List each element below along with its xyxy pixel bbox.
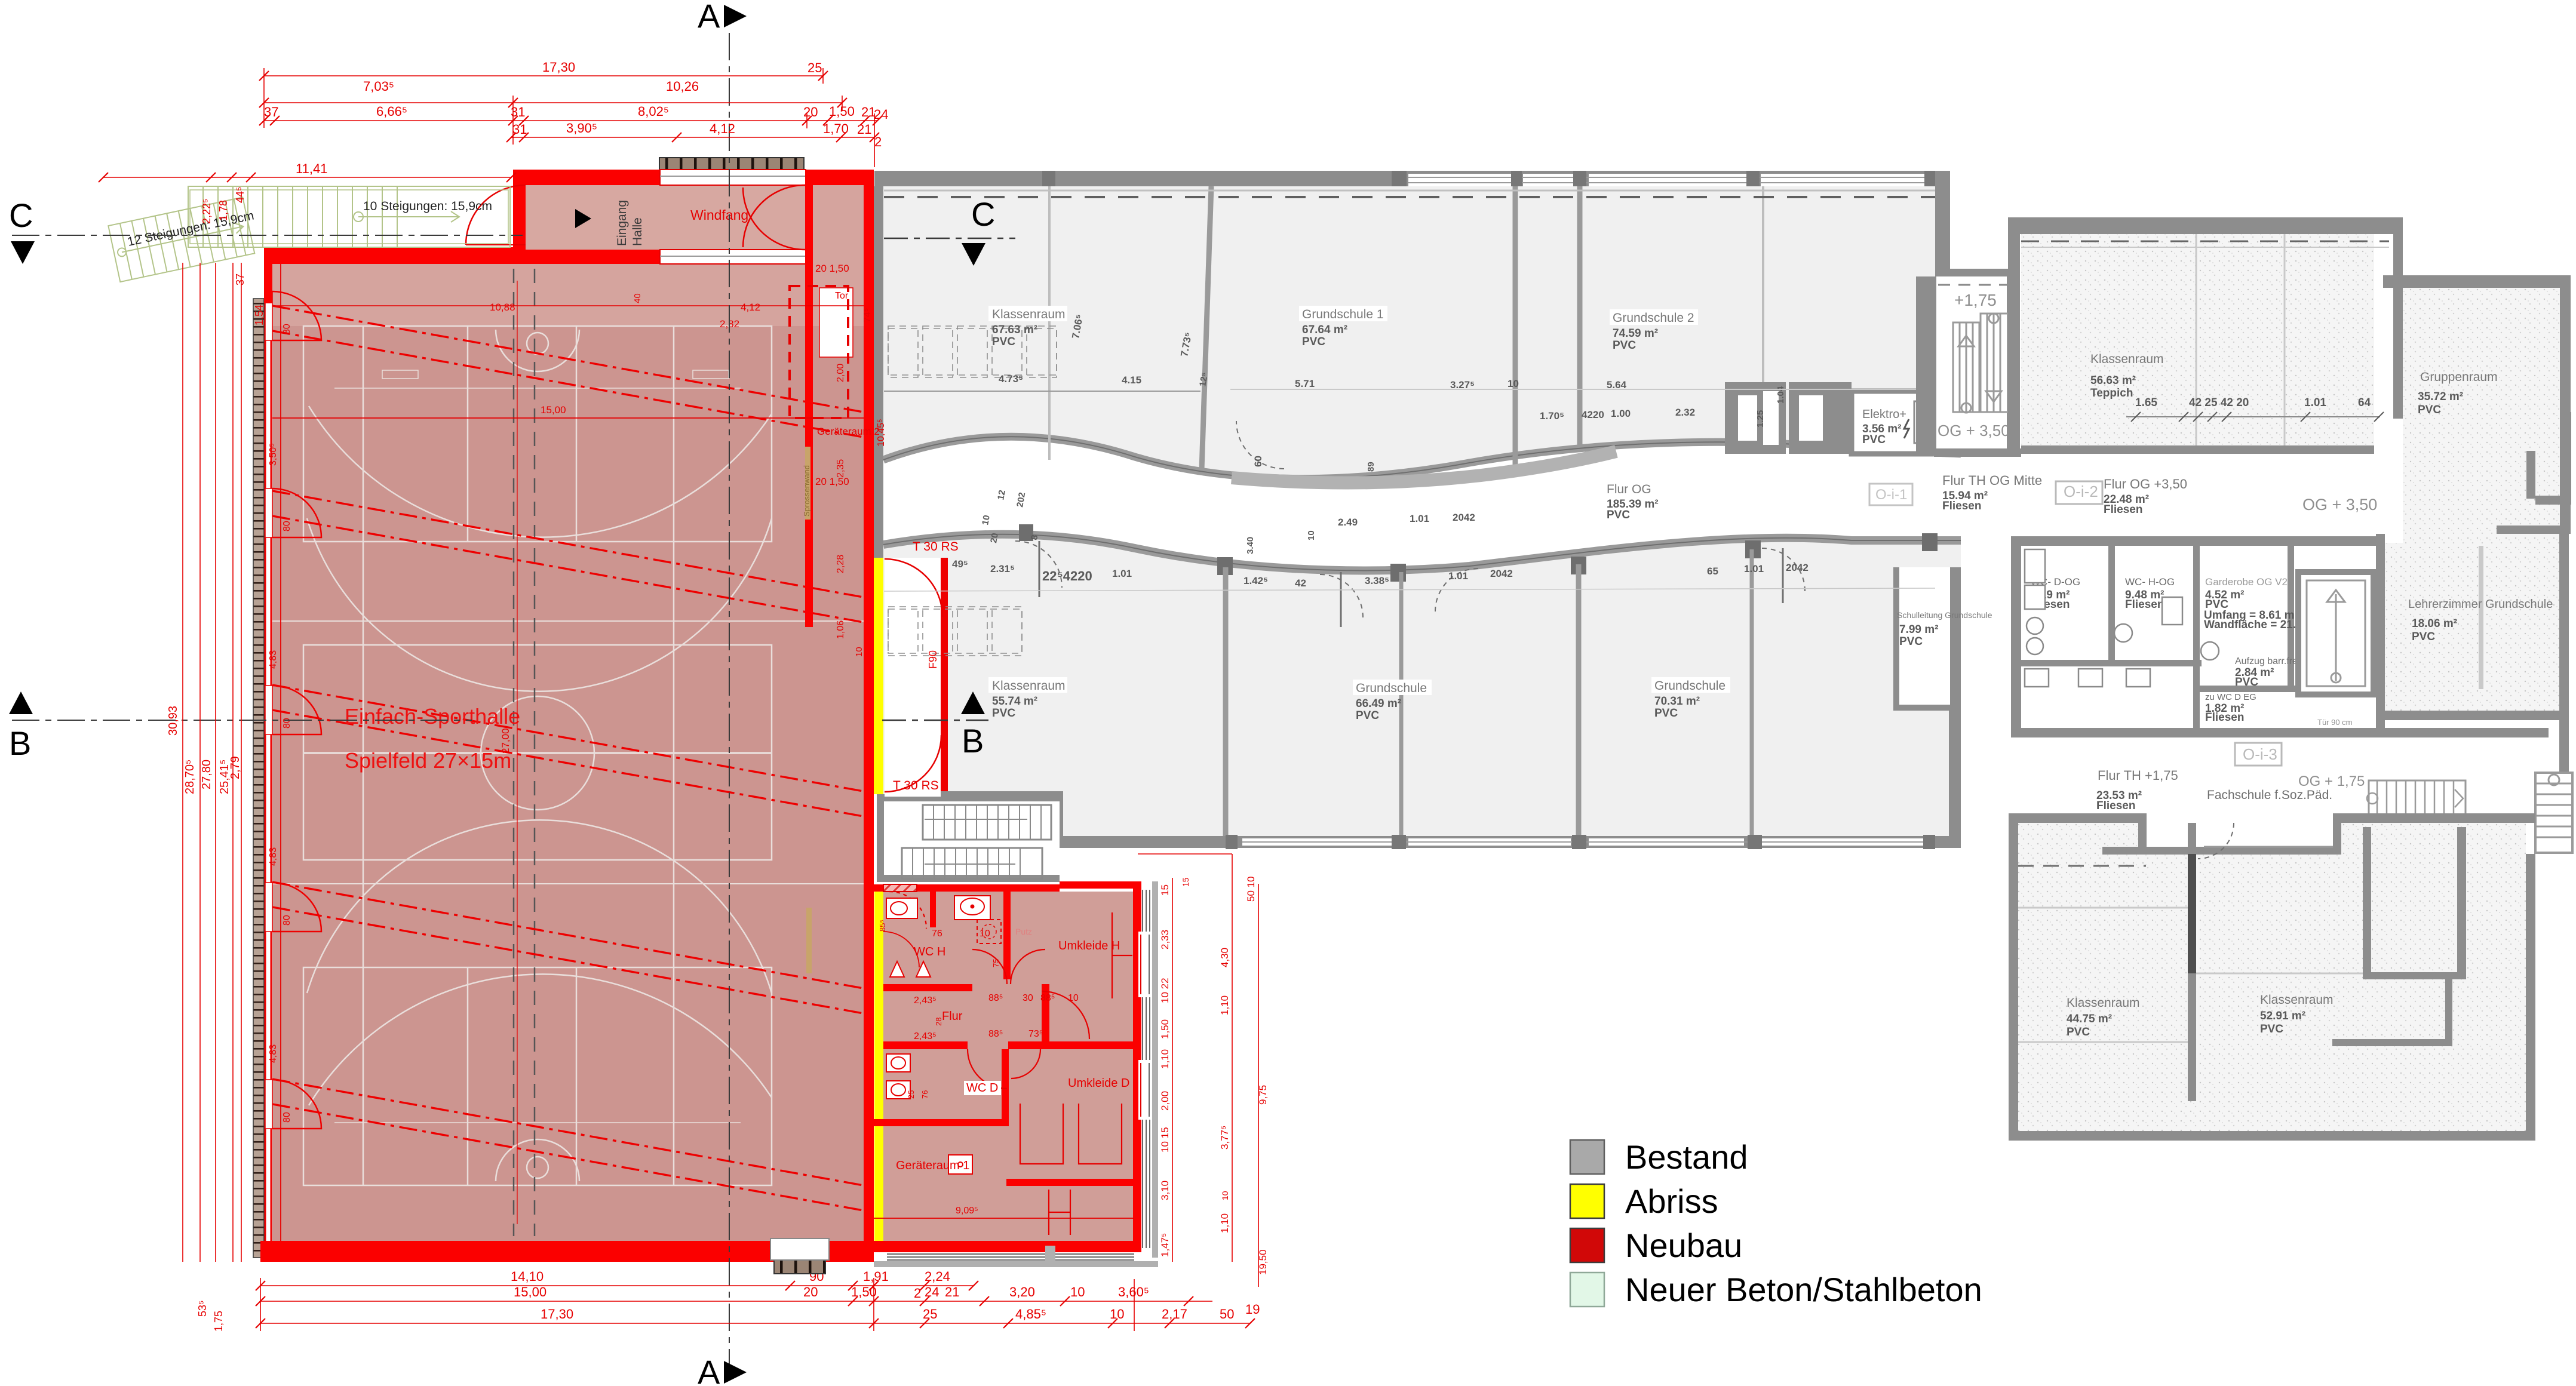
svg-text:80: 80 bbox=[282, 915, 292, 926]
svg-text:B: B bbox=[962, 722, 984, 760]
svg-text:1.25: 1.25 bbox=[1755, 410, 1766, 428]
svg-text:C: C bbox=[9, 196, 33, 234]
svg-text:1.04: 1.04 bbox=[1776, 386, 1786, 404]
svg-text:64: 64 bbox=[2358, 397, 2371, 409]
svg-text:9,75: 9,75 bbox=[1257, 1085, 1269, 1105]
svg-text:4.73⁵: 4.73⁵ bbox=[999, 373, 1023, 385]
svg-text:PVC: PVC bbox=[1356, 709, 1379, 722]
svg-text:19: 19 bbox=[1245, 1302, 1260, 1317]
svg-text:17,30: 17,30 bbox=[541, 1307, 573, 1322]
svg-text:PVC: PVC bbox=[2412, 631, 2435, 643]
svg-text:Elektro+: Elektro+ bbox=[1862, 408, 1906, 421]
svg-text:31: 31 bbox=[511, 105, 525, 119]
svg-text:C: C bbox=[971, 195, 995, 233]
svg-text:Aufzug barr.frei: Aufzug barr.frei bbox=[2235, 656, 2300, 666]
svg-text:10: 10 bbox=[980, 929, 990, 939]
svg-text:10,45⁵: 10,45⁵ bbox=[876, 419, 886, 447]
svg-text:PVC: PVC bbox=[1607, 509, 1630, 521]
svg-text:10: 10 bbox=[1507, 378, 1519, 389]
svg-text:30,93: 30,93 bbox=[167, 706, 180, 736]
svg-text:Grundschule: Grundschule bbox=[1356, 681, 1427, 695]
svg-text:52.91 m²: 52.91 m² bbox=[2260, 1010, 2305, 1022]
svg-text:Flur OG: Flur OG bbox=[1607, 483, 1651, 496]
svg-text:10 15: 10 15 bbox=[1159, 1127, 1171, 1153]
svg-text:PVC: PVC bbox=[1862, 434, 1886, 446]
svg-text:5.71: 5.71 bbox=[1295, 378, 1315, 389]
svg-text:10,88: 10,88 bbox=[490, 302, 515, 313]
svg-text:3,60⁵: 3,60⁵ bbox=[1118, 1284, 1149, 1299]
svg-text:19,50: 19,50 bbox=[1257, 1249, 1269, 1275]
svg-text:Neuer Beton/Stahlbeton: Neuer Beton/Stahlbeton bbox=[1625, 1271, 1982, 1308]
svg-text:20: 20 bbox=[803, 105, 818, 119]
svg-text:Umkleide D: Umkleide D bbox=[1068, 1077, 1129, 1090]
svg-text:1,50: 1,50 bbox=[1159, 1019, 1171, 1039]
svg-text:Tür 90 cm: Tür 90 cm bbox=[2317, 718, 2353, 727]
svg-text:1,10: 1,10 bbox=[1159, 1049, 1171, 1069]
svg-text:42: 42 bbox=[1295, 577, 1306, 589]
svg-text:Eingang: Eingang bbox=[615, 200, 629, 246]
svg-text:8,02⁵: 8,02⁵ bbox=[638, 104, 669, 119]
svg-text:88⁵: 88⁵ bbox=[988, 993, 1003, 1003]
svg-text:50 10: 50 10 bbox=[1245, 876, 1257, 902]
svg-text:89: 89 bbox=[1366, 462, 1376, 472]
svg-text:20: 20 bbox=[803, 1284, 818, 1299]
svg-text:28,70⁵: 28,70⁵ bbox=[183, 760, 196, 794]
svg-text:F90: F90 bbox=[927, 650, 939, 669]
svg-text:10 22: 10 22 bbox=[1159, 978, 1171, 1003]
svg-text:2042: 2042 bbox=[1490, 568, 1513, 579]
svg-text:1.01: 1.01 bbox=[1744, 563, 1764, 574]
svg-text:PVC: PVC bbox=[992, 336, 1015, 348]
svg-text:Fliesen: Fliesen bbox=[2104, 503, 2142, 516]
svg-text:Tor: Tor bbox=[835, 291, 849, 301]
svg-text:17,30: 17,30 bbox=[542, 60, 575, 75]
svg-text:1,10: 1,10 bbox=[1219, 995, 1230, 1015]
svg-text:15: 15 bbox=[1159, 884, 1171, 896]
svg-text:73⁵: 73⁵ bbox=[1028, 1029, 1043, 1039]
svg-text:WC- H-OG: WC- H-OG bbox=[2125, 576, 2175, 588]
svg-text:3,50⁵: 3,50⁵ bbox=[268, 443, 278, 466]
svg-text:Geräteraum 1: Geräteraum 1 bbox=[896, 1159, 969, 1172]
svg-text:4,85⁵: 4,85⁵ bbox=[1015, 1307, 1046, 1322]
svg-text:A: A bbox=[698, 0, 720, 35]
svg-text:1,06: 1,06 bbox=[836, 620, 846, 639]
svg-text:28: 28 bbox=[934, 1018, 943, 1026]
svg-text:Flur: Flur bbox=[942, 1010, 963, 1023]
svg-text:Klassenraum: Klassenraum bbox=[992, 308, 1066, 321]
svg-text:1.01: 1.01 bbox=[1410, 513, 1429, 524]
svg-text:10 Steigungen: 15,9cm: 10 Steigungen: 15,9cm bbox=[363, 199, 492, 213]
svg-text:74⁵: 74⁵ bbox=[862, 308, 873, 322]
svg-text:Garderobe OG V2: Garderobe OG V2 bbox=[2205, 576, 2288, 588]
svg-text:Klassenraum: Klassenraum bbox=[2067, 996, 2140, 1010]
svg-text:2,43⁵: 2,43⁵ bbox=[914, 995, 937, 1006]
svg-text:27,80: 27,80 bbox=[200, 760, 213, 789]
svg-text:+1,75: +1,75 bbox=[1954, 291, 1997, 309]
svg-text:22⁵4220: 22⁵4220 bbox=[1042, 568, 1092, 583]
svg-text:37: 37 bbox=[234, 273, 246, 285]
svg-text:4,30: 4,30 bbox=[1219, 948, 1230, 967]
svg-text:2,24: 2,24 bbox=[925, 1269, 950, 1284]
svg-text:1.01: 1.01 bbox=[1112, 568, 1132, 579]
svg-text:31: 31 bbox=[512, 122, 527, 137]
svg-text:PVC: PVC bbox=[2067, 1026, 2090, 1038]
svg-text:4,83: 4,83 bbox=[268, 847, 278, 866]
svg-text:Windfang: Windfang bbox=[690, 207, 748, 223]
svg-text:OG + 3,50: OG + 3,50 bbox=[1938, 422, 2010, 440]
svg-text:2,00: 2,00 bbox=[836, 364, 846, 382]
svg-text:11,41: 11,41 bbox=[296, 161, 327, 176]
svg-text:65: 65 bbox=[1707, 566, 1718, 577]
svg-text:56.63 m²: 56.63 m² bbox=[2090, 374, 2136, 387]
svg-text:35.72 m²: 35.72 m² bbox=[2418, 391, 2463, 403]
svg-text:Fliesen: Fliesen bbox=[2205, 711, 2244, 724]
svg-text:20 1,50: 20 1,50 bbox=[815, 263, 849, 274]
svg-text:Putz: Putz bbox=[1015, 927, 1032, 936]
svg-text:80: 80 bbox=[282, 718, 292, 729]
svg-text:Klassenraum: Klassenraum bbox=[2260, 993, 2334, 1007]
svg-text:80: 80 bbox=[282, 521, 292, 531]
svg-text:40: 40 bbox=[633, 293, 643, 303]
svg-text:PVC: PVC bbox=[992, 707, 1015, 720]
svg-text:20: 20 bbox=[988, 532, 1000, 543]
svg-text:Fliesen: Fliesen bbox=[2125, 598, 2164, 611]
svg-text:55.74 m²: 55.74 m² bbox=[992, 695, 1037, 708]
svg-text:14,10: 14,10 bbox=[511, 1269, 544, 1284]
svg-text:2,28: 2,28 bbox=[836, 555, 846, 573]
svg-text:3,10: 3,10 bbox=[1159, 1181, 1171, 1200]
svg-text:10: 10 bbox=[1220, 1191, 1230, 1200]
svg-text:1,75: 1,75 bbox=[213, 1311, 225, 1332]
svg-text:9,09⁵: 9,09⁵ bbox=[956, 1206, 978, 1216]
svg-text:2,35: 2,35 bbox=[836, 459, 846, 478]
svg-text:1,50: 1,50 bbox=[851, 1284, 877, 1299]
svg-text:1.01: 1.01 bbox=[2304, 397, 2326, 409]
svg-text:21: 21 bbox=[945, 1284, 959, 1299]
svg-text:3,77⁵: 3,77⁵ bbox=[1219, 1126, 1230, 1150]
svg-text:1,47⁵: 1,47⁵ bbox=[1159, 1233, 1171, 1257]
svg-text:50: 50 bbox=[1220, 1307, 1234, 1322]
svg-text:PVC: PVC bbox=[1302, 336, 1325, 348]
svg-text:2.31⁵: 2.31⁵ bbox=[990, 563, 1015, 574]
svg-text:30: 30 bbox=[1023, 993, 1033, 1003]
svg-text:4220: 4220 bbox=[1582, 409, 1604, 420]
svg-text:2042: 2042 bbox=[1453, 512, 1475, 523]
svg-text:10: 10 bbox=[1110, 1307, 1124, 1322]
svg-text:2.32: 2.32 bbox=[1675, 407, 1695, 418]
svg-text:24: 24 bbox=[874, 107, 888, 122]
svg-text:PVC: PVC bbox=[2235, 676, 2258, 689]
svg-text:1.01: 1.01 bbox=[1448, 570, 1468, 582]
svg-text:Grundschule 2: Grundschule 2 bbox=[1613, 311, 1694, 325]
svg-text:42 25 42 20: 42 25 42 20 bbox=[2189, 397, 2249, 409]
svg-text:zu WC D EG: zu WC D EG bbox=[2205, 692, 2256, 702]
svg-text:2,33: 2,33 bbox=[1159, 930, 1171, 949]
svg-text:15,00: 15,00 bbox=[514, 1284, 546, 1299]
svg-text:44.75 m²: 44.75 m² bbox=[2067, 1013, 2112, 1025]
svg-text:49⁵: 49⁵ bbox=[952, 558, 968, 570]
svg-text:Gruppenraum: Gruppenraum bbox=[2420, 370, 2498, 384]
svg-text:1,70: 1,70 bbox=[823, 121, 849, 136]
svg-text:75: 75 bbox=[991, 959, 1000, 967]
svg-text:1,91: 1,91 bbox=[863, 1269, 889, 1284]
svg-text:25: 25 bbox=[907, 1090, 916, 1099]
svg-text:Klassenraum: Klassenraum bbox=[992, 679, 1066, 693]
svg-text:Abriss: Abriss bbox=[1625, 1182, 1718, 1220]
svg-text:27,00: 27,00 bbox=[500, 728, 511, 754]
svg-text:Fliesen: Fliesen bbox=[1942, 500, 1981, 512]
svg-text:25: 25 bbox=[808, 60, 822, 75]
svg-text:66.49 m²: 66.49 m² bbox=[1356, 697, 1401, 710]
svg-text:Geräteraum 2: Geräteraum 2 bbox=[817, 426, 880, 437]
svg-text:WC D: WC D bbox=[966, 1081, 998, 1095]
svg-text:Fliesen: Fliesen bbox=[2096, 800, 2135, 812]
svg-text:O-i-2: O-i-2 bbox=[2064, 483, 2098, 500]
svg-text:67.64 m²: 67.64 m² bbox=[1302, 324, 1347, 336]
svg-text:Halle: Halle bbox=[631, 217, 644, 246]
svg-text:Sprossenwand: Sprossenwand bbox=[802, 465, 811, 517]
svg-text:76: 76 bbox=[932, 929, 942, 939]
svg-text:3.38⁵: 3.38⁵ bbox=[1365, 575, 1389, 586]
svg-text:1.42⁵: 1.42⁵ bbox=[1244, 575, 1268, 586]
svg-text:44⁵: 44⁵ bbox=[234, 187, 246, 203]
svg-text:Klassenraum: Klassenraum bbox=[2090, 352, 2164, 366]
svg-text:18.06 m²: 18.06 m² bbox=[2412, 617, 2457, 630]
svg-text:4,83: 4,83 bbox=[268, 650, 278, 669]
svg-text:PVC: PVC bbox=[2260, 1023, 2283, 1035]
svg-text:88⁵: 88⁵ bbox=[1040, 993, 1055, 1003]
svg-text:3,20: 3,20 bbox=[1009, 1284, 1035, 1299]
svg-text:Umkleide H: Umkleide H bbox=[1058, 939, 1120, 952]
svg-text:25: 25 bbox=[923, 1307, 937, 1322]
svg-text:Lehrerzimmer Grundschule: Lehrerzimmer Grundschule bbox=[2408, 598, 2553, 611]
svg-text:4.15: 4.15 bbox=[1122, 374, 1141, 386]
svg-text:10,26: 10,26 bbox=[666, 79, 699, 94]
svg-text:Einfach-Sporthalle: Einfach-Sporthalle bbox=[345, 704, 520, 729]
svg-text:1,54: 1,54 bbox=[253, 305, 265, 325]
svg-text:1,78: 1,78 bbox=[217, 200, 229, 221]
svg-text:2: 2 bbox=[914, 1286, 921, 1301]
svg-text:74.59 m²: 74.59 m² bbox=[1613, 327, 1658, 340]
svg-text:12: 12 bbox=[996, 489, 1008, 500]
svg-text:70.31 m²: 70.31 m² bbox=[1654, 695, 1700, 708]
svg-text:15,00: 15,00 bbox=[541, 404, 566, 416]
svg-text:1.70⁵: 1.70⁵ bbox=[1540, 410, 1564, 422]
svg-text:10: 10 bbox=[854, 647, 864, 657]
svg-text:Bestand: Bestand bbox=[1625, 1138, 1748, 1176]
svg-text:88⁵: 88⁵ bbox=[988, 1029, 1003, 1039]
svg-text:37: 37 bbox=[264, 105, 278, 119]
svg-text:3,90⁵: 3,90⁵ bbox=[566, 121, 597, 136]
svg-text:T 30 RS: T 30 RS bbox=[893, 779, 939, 792]
svg-text:Flur TH OG Mitte: Flur TH OG Mitte bbox=[1942, 473, 2042, 488]
svg-text:6,66⁵: 6,66⁵ bbox=[376, 104, 407, 119]
svg-text:60: 60 bbox=[1252, 456, 1264, 467]
svg-text:Grundschule 1: Grundschule 1 bbox=[1302, 308, 1384, 321]
svg-text:Neubau: Neubau bbox=[1625, 1227, 1742, 1264]
svg-text:4,12: 4,12 bbox=[741, 302, 760, 313]
svg-text:O-i-3: O-i-3 bbox=[2243, 745, 2277, 763]
svg-text:Flur OG +3,50: Flur OG +3,50 bbox=[2104, 477, 2187, 491]
svg-text:80: 80 bbox=[282, 324, 292, 334]
svg-text:2,17: 2,17 bbox=[1162, 1307, 1187, 1322]
svg-text:76: 76 bbox=[920, 1090, 929, 1099]
svg-text:PVC: PVC bbox=[1613, 339, 1636, 352]
svg-text:Flur TH +1,75: Flur TH +1,75 bbox=[2098, 768, 2178, 783]
svg-text:10: 10 bbox=[1070, 1284, 1085, 1299]
svg-text:1.00: 1.00 bbox=[1611, 408, 1631, 419]
svg-text:OG + 1,75: OG + 1,75 bbox=[2298, 773, 2365, 789]
svg-text:15: 15 bbox=[1181, 877, 1190, 887]
svg-text:21: 21 bbox=[857, 122, 871, 137]
svg-text:B: B bbox=[9, 724, 31, 762]
svg-text:2,22⁵: 2,22⁵ bbox=[201, 199, 213, 225]
svg-text:7.99 m²: 7.99 m² bbox=[1899, 623, 1938, 636]
svg-text:53⁵: 53⁵ bbox=[196, 1301, 208, 1317]
svg-text:4,12: 4,12 bbox=[710, 121, 735, 136]
svg-text:10: 10 bbox=[1306, 530, 1316, 540]
svg-text:10: 10 bbox=[980, 514, 992, 525]
svg-text:67.63 m²: 67.63 m² bbox=[992, 324, 1037, 336]
svg-text:1.65: 1.65 bbox=[2135, 397, 2157, 409]
svg-text:2: 2 bbox=[874, 134, 882, 149]
svg-text:1,50: 1,50 bbox=[829, 104, 855, 119]
svg-text:2.49: 2.49 bbox=[1338, 517, 1358, 528]
svg-text:2,79: 2,79 bbox=[229, 756, 242, 779]
svg-text:PVC: PVC bbox=[2418, 404, 2441, 416]
svg-text:Grundschule: Grundschule bbox=[1654, 679, 1725, 693]
svg-text:24: 24 bbox=[925, 1284, 939, 1299]
svg-text:2,43⁵: 2,43⁵ bbox=[914, 1031, 937, 1041]
svg-text:OG + 3,50: OG + 3,50 bbox=[2302, 496, 2377, 514]
svg-text:85⁵: 85⁵ bbox=[878, 920, 887, 932]
svg-text:Teppich: Teppich bbox=[2090, 387, 2133, 399]
svg-text:2,00: 2,00 bbox=[1159, 1091, 1171, 1111]
svg-text:PVC: PVC bbox=[1899, 635, 1923, 648]
svg-text:10: 10 bbox=[1068, 993, 1079, 1003]
svg-text:80: 80 bbox=[282, 1112, 292, 1123]
svg-text:T 30 RS: T 30 RS bbox=[913, 540, 959, 554]
svg-text:PVC: PVC bbox=[1654, 707, 1678, 720]
svg-text:3.40: 3.40 bbox=[1245, 537, 1255, 554]
svg-text:1,10: 1,10 bbox=[1219, 1213, 1230, 1233]
svg-text:4,83: 4,83 bbox=[268, 1044, 278, 1063]
svg-text:Schulleitung Grundschule: Schulleitung Grundschule bbox=[1897, 610, 1992, 620]
svg-text:O-i-1: O-i-1 bbox=[1875, 487, 1907, 503]
svg-text:Fachschule f.Soz.Päd.: Fachschule f.Soz.Päd. bbox=[2207, 788, 2332, 802]
svg-text:2042: 2042 bbox=[1786, 562, 1809, 573]
svg-text:A: A bbox=[698, 1353, 720, 1386]
svg-text:7,03⁵: 7,03⁵ bbox=[363, 79, 394, 94]
svg-text:Spielfeld 27×15m: Spielfeld 27×15m bbox=[345, 748, 511, 773]
svg-text:WC H: WC H bbox=[914, 945, 945, 958]
